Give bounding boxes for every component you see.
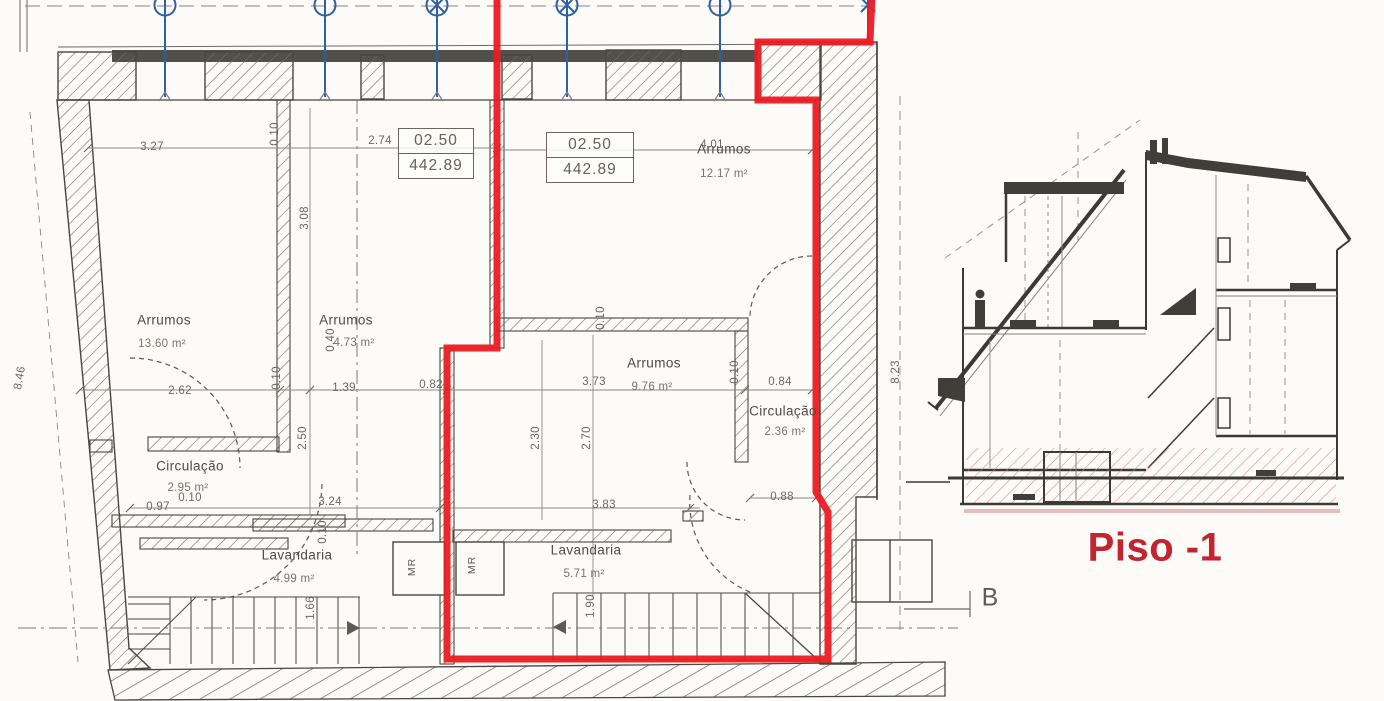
dimension-label: 1.66 — [305, 596, 317, 620]
room-name: Circulação — [156, 459, 224, 474]
dimension-label: 0.10 — [271, 366, 283, 390]
room-name: Arrumos — [627, 356, 681, 371]
dimension-label: 1.90 — [585, 594, 597, 618]
dimension-label: 0.82 — [419, 379, 443, 391]
stair-centerline — [18, 620, 958, 635]
window-marks — [1218, 238, 1230, 428]
dimension-label: 0.97 — [146, 501, 170, 513]
building-section — [906, 120, 1350, 511]
stair-arrow-right — [347, 621, 360, 635]
section-stairs — [1148, 328, 1214, 468]
grid-marker-icon — [557, 0, 578, 97]
room-area: 4.73 m² — [333, 337, 374, 349]
closet-label: MR — [466, 556, 478, 574]
dimension-label: 0.10 — [595, 306, 607, 330]
dimension-label: 0.10 — [178, 492, 202, 504]
dimension-label: 0.10 — [729, 360, 741, 384]
grid-marker-icon — [710, 0, 731, 97]
closet-label: MR — [406, 558, 418, 576]
section-cut-label: B — [982, 584, 999, 613]
dimension-label: 0.88 — [770, 491, 794, 503]
dimension-label: 3.27 — [140, 141, 164, 153]
room-name: Arrumos — [319, 313, 373, 328]
dimension-label: 2.30 — [530, 426, 542, 450]
grid-marker-icon — [315, 0, 336, 97]
dimension-label: 0.40 — [325, 328, 337, 352]
dimension-label: 2.74 — [368, 135, 392, 147]
level-elevation: 02.50 — [399, 129, 473, 153]
room-name: Circulação — [749, 404, 817, 419]
room-area: 2.36 m² — [764, 426, 805, 438]
level-datum: 442.89 — [547, 157, 633, 182]
scanned-floor-plan-page: Arrumos 13.60 m² Arrumos 4.73 m² Arrumos… — [0, 0, 1384, 701]
grid-marker-icon — [427, 0, 448, 97]
level-datum: 442.89 — [399, 153, 473, 178]
dimension-label: 2.70 — [581, 426, 593, 450]
room-area: 9.76 m² — [631, 381, 672, 393]
room-name: Lavandaria — [262, 548, 333, 563]
dimension-label: 3.83 — [592, 499, 616, 511]
dimension-label: 0.10 — [269, 122, 281, 146]
dimension-label: 0.84 — [768, 376, 792, 388]
room-name: Lavandaria — [551, 543, 622, 558]
chimney — [1150, 140, 1157, 164]
dimension-label: 8.23 — [890, 360, 902, 384]
dormer-roof — [1004, 182, 1124, 194]
main-roof — [1146, 150, 1306, 182]
floor-slabs — [963, 290, 1337, 470]
dimension-label: 4.01 — [700, 139, 724, 151]
bottom-exterior-wall — [108, 662, 945, 700]
room-area: 12.17 m² — [700, 168, 748, 180]
chimney — [1162, 138, 1168, 164]
section-cut-line — [904, 591, 970, 617]
grid-marker-icon — [155, 0, 176, 97]
room-area: 4.99 m² — [273, 573, 314, 585]
level-marker: 02.50 442.89 — [398, 128, 474, 179]
dimension-label: 2.50 — [297, 426, 309, 450]
stair-arrow-left — [553, 620, 566, 634]
drawing-canvas — [0, 0, 1384, 701]
dimension-label: 3.24 — [318, 496, 342, 508]
dimension-label: 3.73 — [582, 376, 606, 388]
section-caption: Piso -1 — [1088, 526, 1223, 571]
stairs-left — [128, 597, 360, 664]
dimension-label: 3.08 — [299, 206, 311, 230]
level-elevation: 02.50 — [547, 133, 633, 157]
dimension-label: 1.39 — [332, 382, 356, 394]
room-name: Arrumos — [137, 313, 191, 328]
room-area: 5.71 m² — [563, 568, 604, 580]
dimension-label: 2.62 — [168, 385, 192, 397]
room-area: 13.60 m² — [138, 338, 186, 350]
level-marker: 02.50 442.89 — [546, 132, 634, 183]
dimension-label: 0.10 — [317, 520, 329, 544]
